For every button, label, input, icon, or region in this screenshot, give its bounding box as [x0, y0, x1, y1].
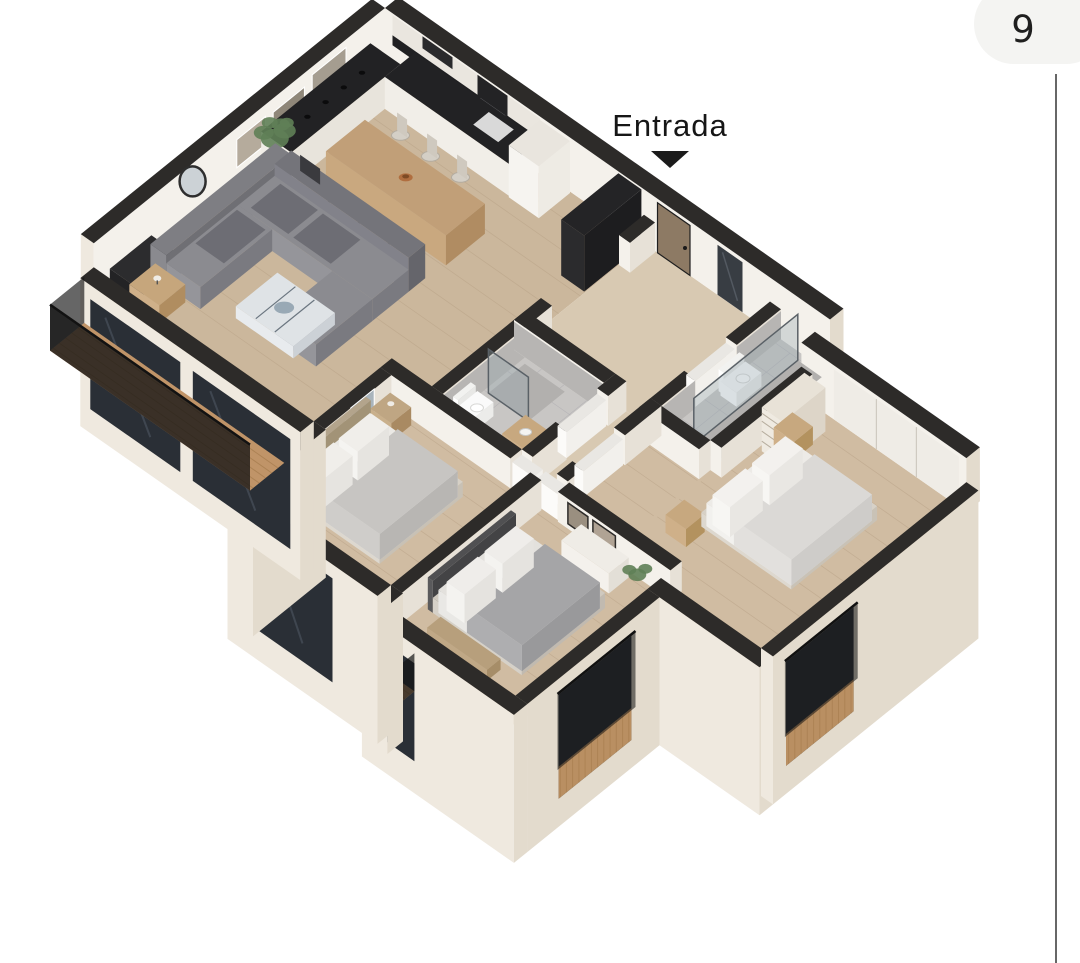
entrance-label: Entrada	[560, 108, 780, 144]
vertical-divider-line	[1055, 74, 1057, 963]
entrance-label-group: Entrada	[560, 108, 780, 168]
image-counter-badge: 9	[974, 0, 1080, 64]
triangle-down-icon	[651, 151, 689, 168]
image-counter-value: 9	[1011, 8, 1035, 51]
floor-plan-render	[0, 0, 1080, 963]
floor-plan-viewer: Entrada 9	[0, 0, 1080, 963]
